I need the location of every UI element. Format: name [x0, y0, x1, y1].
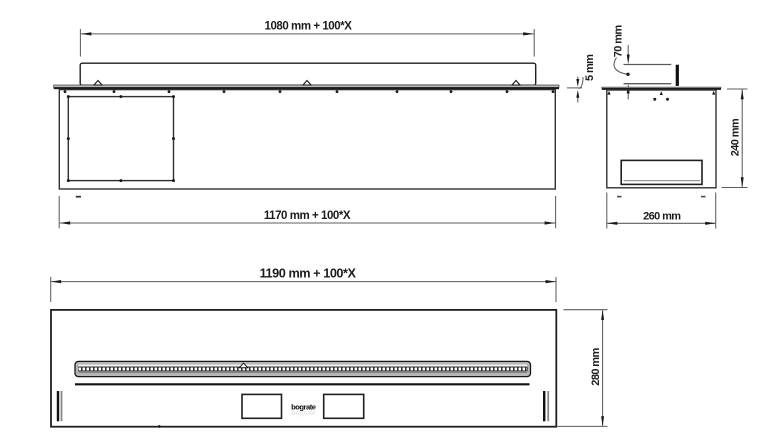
- svg-text:240 mm: 240 mm: [729, 118, 741, 156]
- svg-text:70 mm: 70 mm: [613, 25, 625, 58]
- svg-text:260 mm: 260 mm: [643, 211, 681, 223]
- svg-text:1080 mm + 100*X: 1080 mm + 100*X: [265, 21, 353, 33]
- svg-text:1190 mm + 100*X: 1190 mm + 100*X: [260, 267, 357, 281]
- svg-text:bograte: bograte: [291, 408, 316, 417]
- svg-text:280 mm: 280 mm: [590, 347, 602, 385]
- svg-text:1170 mm + 100*X: 1170 mm + 100*X: [264, 210, 351, 222]
- svg-text:5 mm: 5 mm: [584, 54, 596, 81]
